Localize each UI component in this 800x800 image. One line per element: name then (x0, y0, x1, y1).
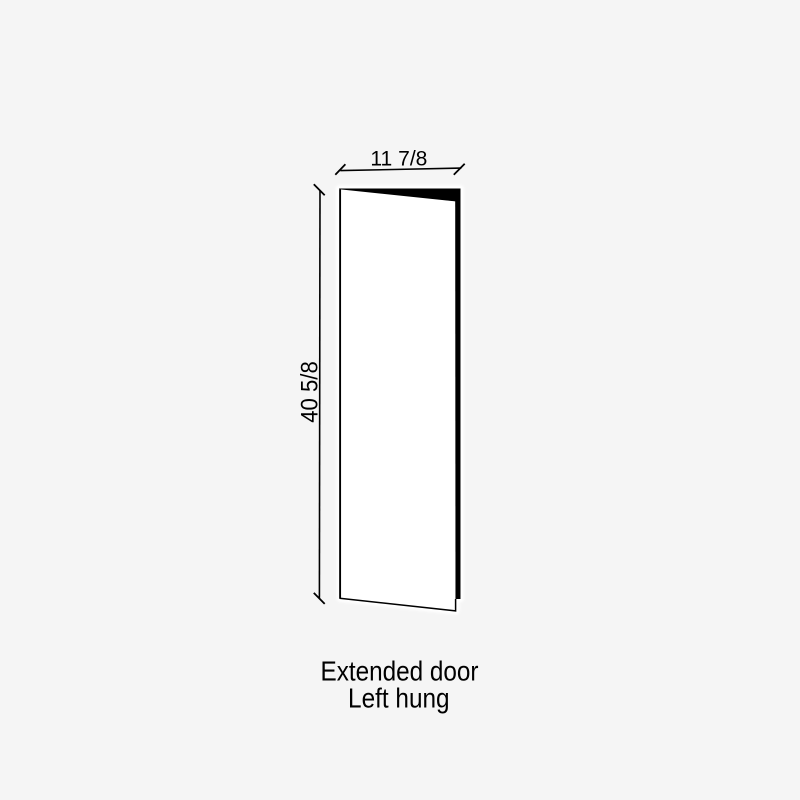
svg-text:Left hung: Left hung (348, 683, 450, 714)
svg-text:11 7/8: 11 7/8 (370, 147, 427, 170)
svg-text:40 5/8: 40 5/8 (297, 361, 324, 423)
